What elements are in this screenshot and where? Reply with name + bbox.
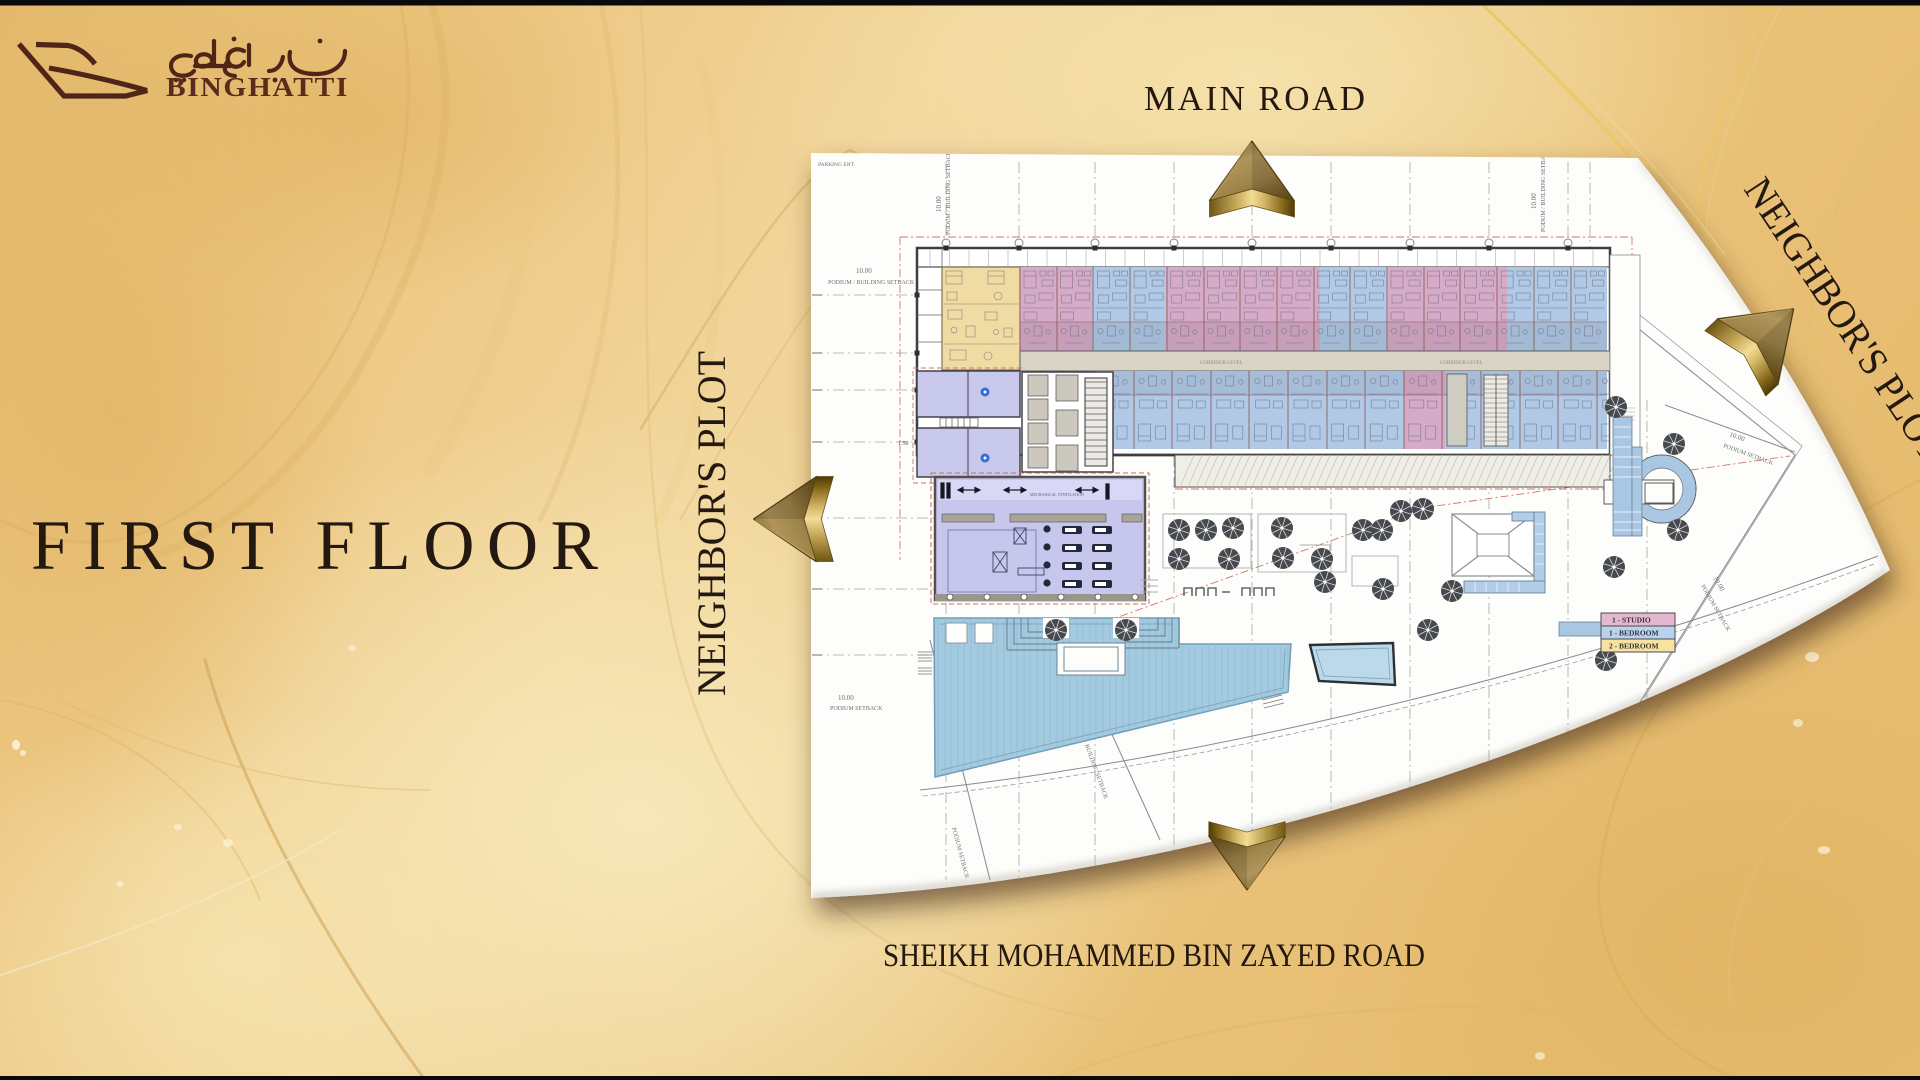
svg-text:10.00: 10.00 [856,267,872,275]
svg-text:1 - BEDROOM: 1 - BEDROOM [1609,629,1659,638]
svg-text:MAIN ROAD: MAIN ROAD [1144,79,1365,118]
svg-text:PODUM / BUILDING SETBACK: PODUM / BUILDING SETBACK [1541,147,1547,232]
svg-text:PODIUM / BUILDING SETBACK: PODIUM / BUILDING SETBACK [828,280,915,286]
svg-text:10.00: 10.00 [935,196,943,212]
svg-text:2 - BEDROOM: 2 - BEDROOM [1609,642,1659,651]
svg-text:PODIUM SETBACK: PODIUM SETBACK [830,706,883,712]
svg-text:10.00: 10.00 [838,694,854,702]
svg-text:PODUM / BUILDING SETBACK: PODUM / BUILDING SETBACK [946,150,952,235]
svg-text:10.00: 10.00 [1530,193,1538,209]
svg-text:1 - STUDIO: 1 - STUDIO [1612,616,1651,625]
svg-text:NEIGHBOR'S PLOT: NEIGHBOR'S PLOT [689,351,734,696]
svg-text:CORRIDOR LEVEL: CORRIDOR LEVEL [1440,361,1483,366]
svg-text:1.50: 1.50 [898,441,909,447]
svg-text:BINGHATTI: BINGHATTI [166,72,349,102]
svg-text:MECHANICAL VENTILATION: MECHANICAL VENTILATION [1030,492,1084,497]
svg-text:CORRIDOR LEVEL: CORRIDOR LEVEL [1200,361,1243,366]
svg-text:PARKING ENT.: PARKING ENT. [818,162,856,168]
svg-text:SHEIKH MOHAMMED BIN ZAYED ROAD: SHEIKH MOHAMMED BIN ZAYED ROAD [883,938,1425,974]
